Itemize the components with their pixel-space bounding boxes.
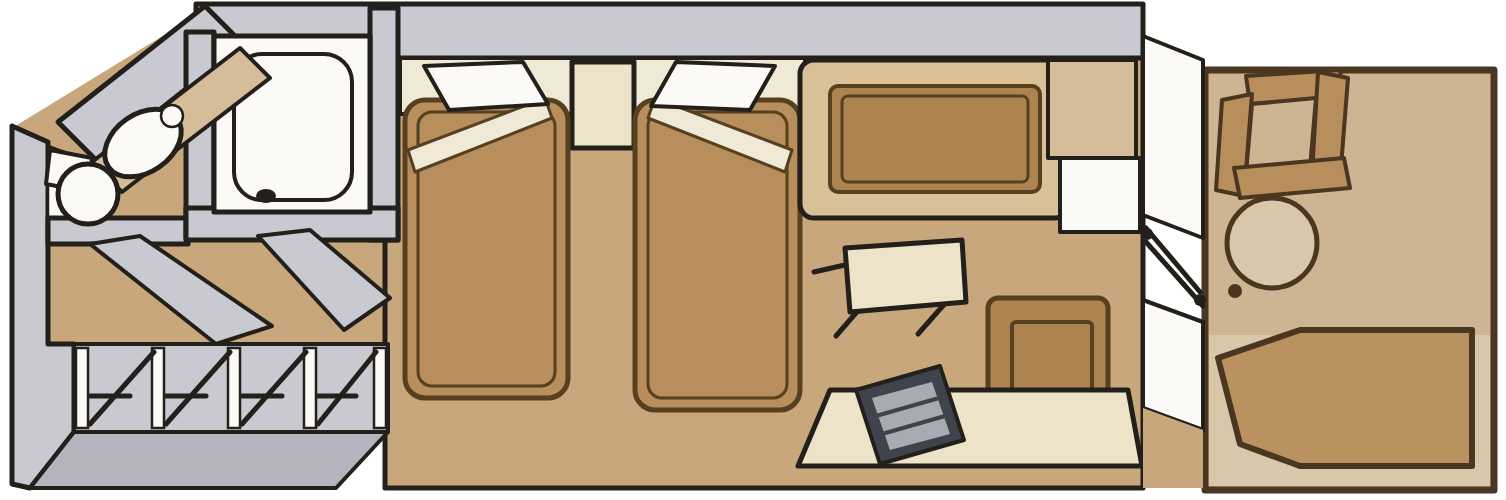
cabinet (1048, 60, 1140, 232)
partition-lower (1143, 300, 1203, 430)
floor-plan-canvas (0, 0, 1506, 500)
twin-bed-1 (405, 62, 568, 398)
closet-front-face (30, 432, 388, 488)
desk (798, 390, 1142, 466)
ottoman (988, 298, 1108, 398)
closet-row (30, 344, 388, 488)
stateroom-floor-plan (0, 0, 1506, 500)
closet-divider (304, 348, 316, 428)
closet-divider (76, 348, 88, 428)
tub-drain (256, 189, 276, 203)
table-foot (1228, 284, 1242, 298)
closet-divider (152, 348, 164, 428)
partition-upper (1143, 36, 1203, 238)
closet-divider (228, 348, 240, 428)
twin-bed-2 (635, 62, 800, 410)
coffee-table-top (845, 240, 966, 312)
lounge-chair (1218, 330, 1472, 466)
closet-divider (374, 348, 386, 428)
sliding-glass-door (1141, 228, 1206, 306)
cabinet-front (1060, 158, 1140, 232)
faucet (161, 105, 183, 127)
sofa (800, 60, 1068, 218)
nightstand (572, 62, 634, 148)
